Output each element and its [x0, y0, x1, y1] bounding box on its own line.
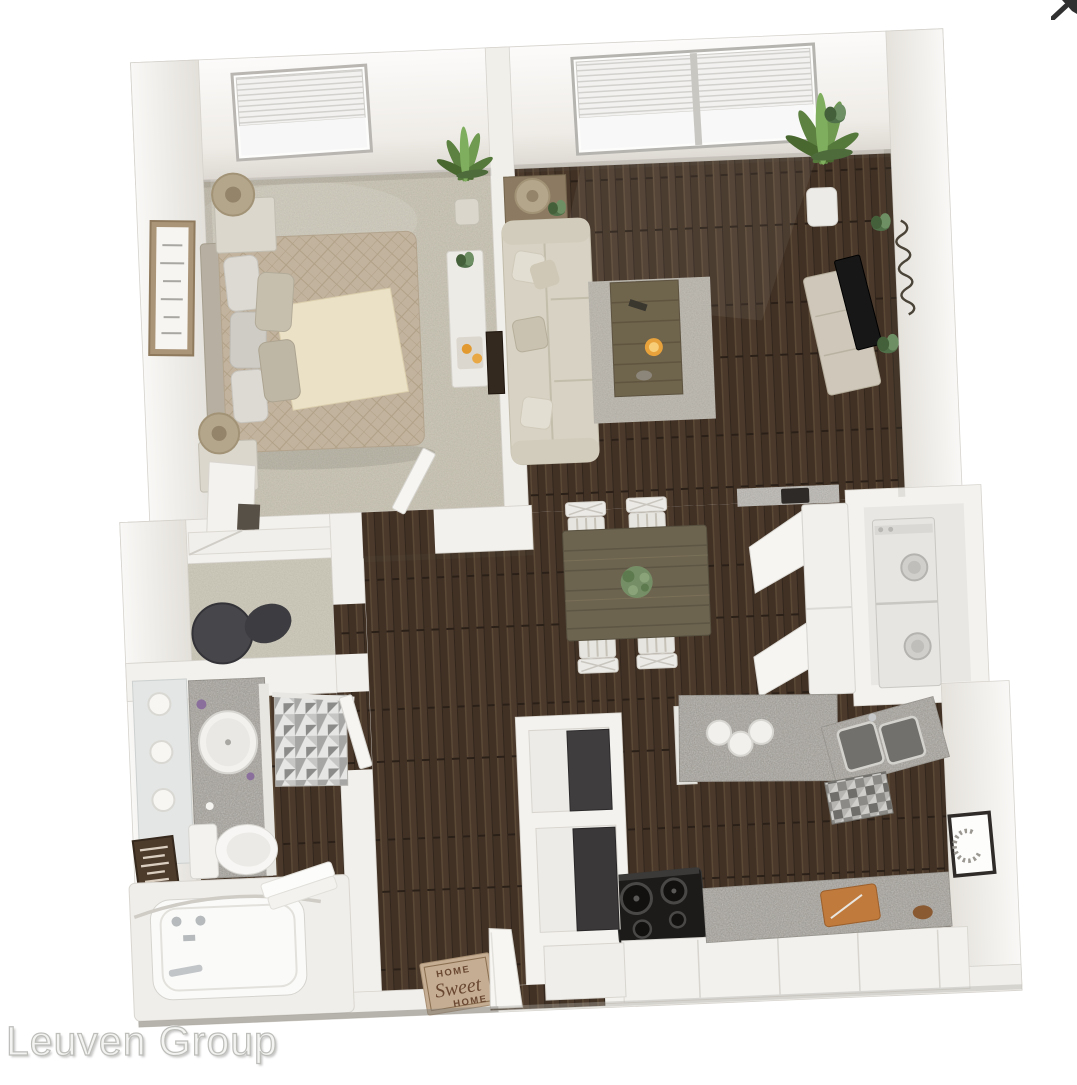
wall-picture-frame — [149, 221, 194, 355]
console-table — [504, 175, 568, 226]
coffee-maker — [781, 488, 810, 504]
floor-plan-rendering: HOME Sweet HOME — [0, 0, 1077, 1080]
stove — [613, 867, 707, 945]
throw-pillow — [512, 316, 549, 353]
dining-table — [562, 525, 710, 641]
laundry-alcove — [864, 503, 971, 688]
kitchen-island — [673, 689, 840, 787]
closet-door-dark — [573, 827, 619, 931]
bar-stool — [749, 719, 774, 744]
monogram-wall-frame — [949, 812, 994, 875]
sofa — [501, 218, 599, 465]
cutting-board — [820, 883, 881, 927]
external-arrow-icon[interactable] — [1051, 0, 1077, 20]
floor-plan-screenshot: HOME Sweet HOME Leuven Group — [0, 0, 1077, 1080]
bedroom-window — [232, 65, 372, 160]
throw-pillow — [520, 396, 554, 430]
bathtub — [128, 860, 354, 1021]
closet-chair — [191, 602, 253, 664]
closet-door-dark — [567, 729, 612, 811]
bedroom-console — [447, 250, 489, 387]
bedroom-plant-pot — [454, 198, 479, 225]
bedroom-tv — [486, 331, 505, 394]
door-mat: HOME Sweet HOME — [420, 953, 498, 1016]
floor-plan: HOME Sweet HOME — [95, 27, 1023, 1028]
stacked-washer-dryer — [872, 517, 941, 687]
tub-spout — [183, 935, 195, 941]
sliding-glass-door — [572, 44, 819, 154]
watermark: Leuven Group — [6, 1018, 278, 1065]
coffee-table — [610, 280, 683, 397]
